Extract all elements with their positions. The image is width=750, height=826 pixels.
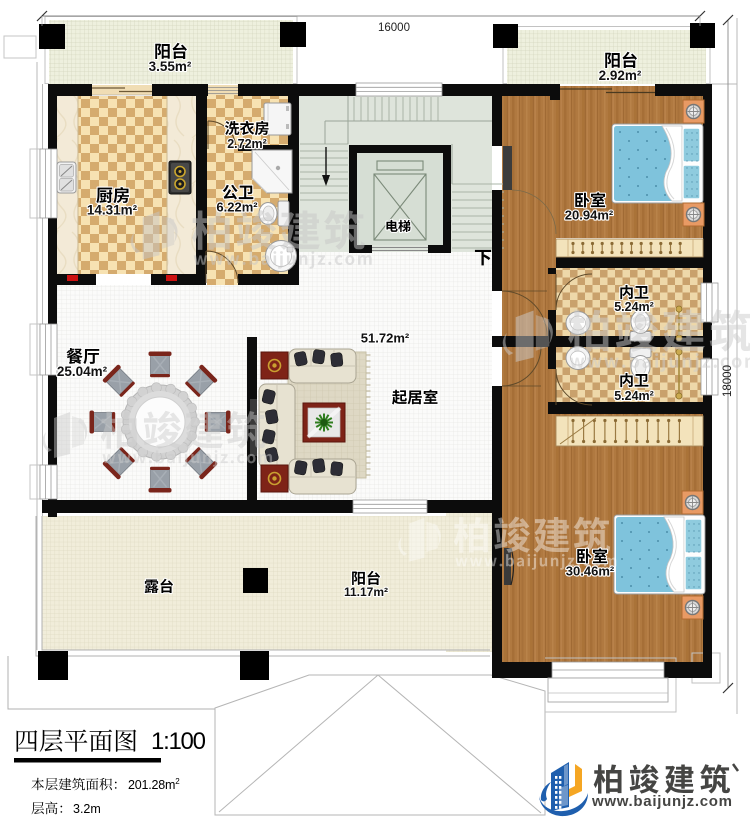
svg-text:1:100: 1:100 xyxy=(151,728,206,755)
svg-text:3.55m²: 3.55m² xyxy=(149,59,192,74)
svg-text:201.28m2: 201.28m2 xyxy=(128,777,180,792)
svg-text:5.24m²: 5.24m² xyxy=(614,389,654,403)
svg-text:2.72m²: 2.72m² xyxy=(227,137,267,151)
svg-text:6.22m²: 6.22m² xyxy=(216,200,258,215)
svg-text:20.94m²: 20.94m² xyxy=(565,208,614,223)
svg-text:14.31m²: 14.31m² xyxy=(87,203,138,218)
svg-text:18000: 18000 xyxy=(722,365,734,397)
svg-text:16000: 16000 xyxy=(378,22,410,34)
svg-text:www.baijunjz.com: www.baijunjz.com xyxy=(591,793,733,810)
svg-text:11.17m²: 11.17m² xyxy=(344,585,388,599)
svg-text:30.46m²: 30.46m² xyxy=(566,564,615,579)
svg-text:51.72m²: 51.72m² xyxy=(361,331,410,346)
svg-text:25.04m²: 25.04m² xyxy=(57,364,108,379)
svg-text:3.2m: 3.2m xyxy=(73,802,101,816)
svg-text:5.24m²: 5.24m² xyxy=(614,300,654,314)
svg-text:2.92m²: 2.92m² xyxy=(599,68,642,83)
